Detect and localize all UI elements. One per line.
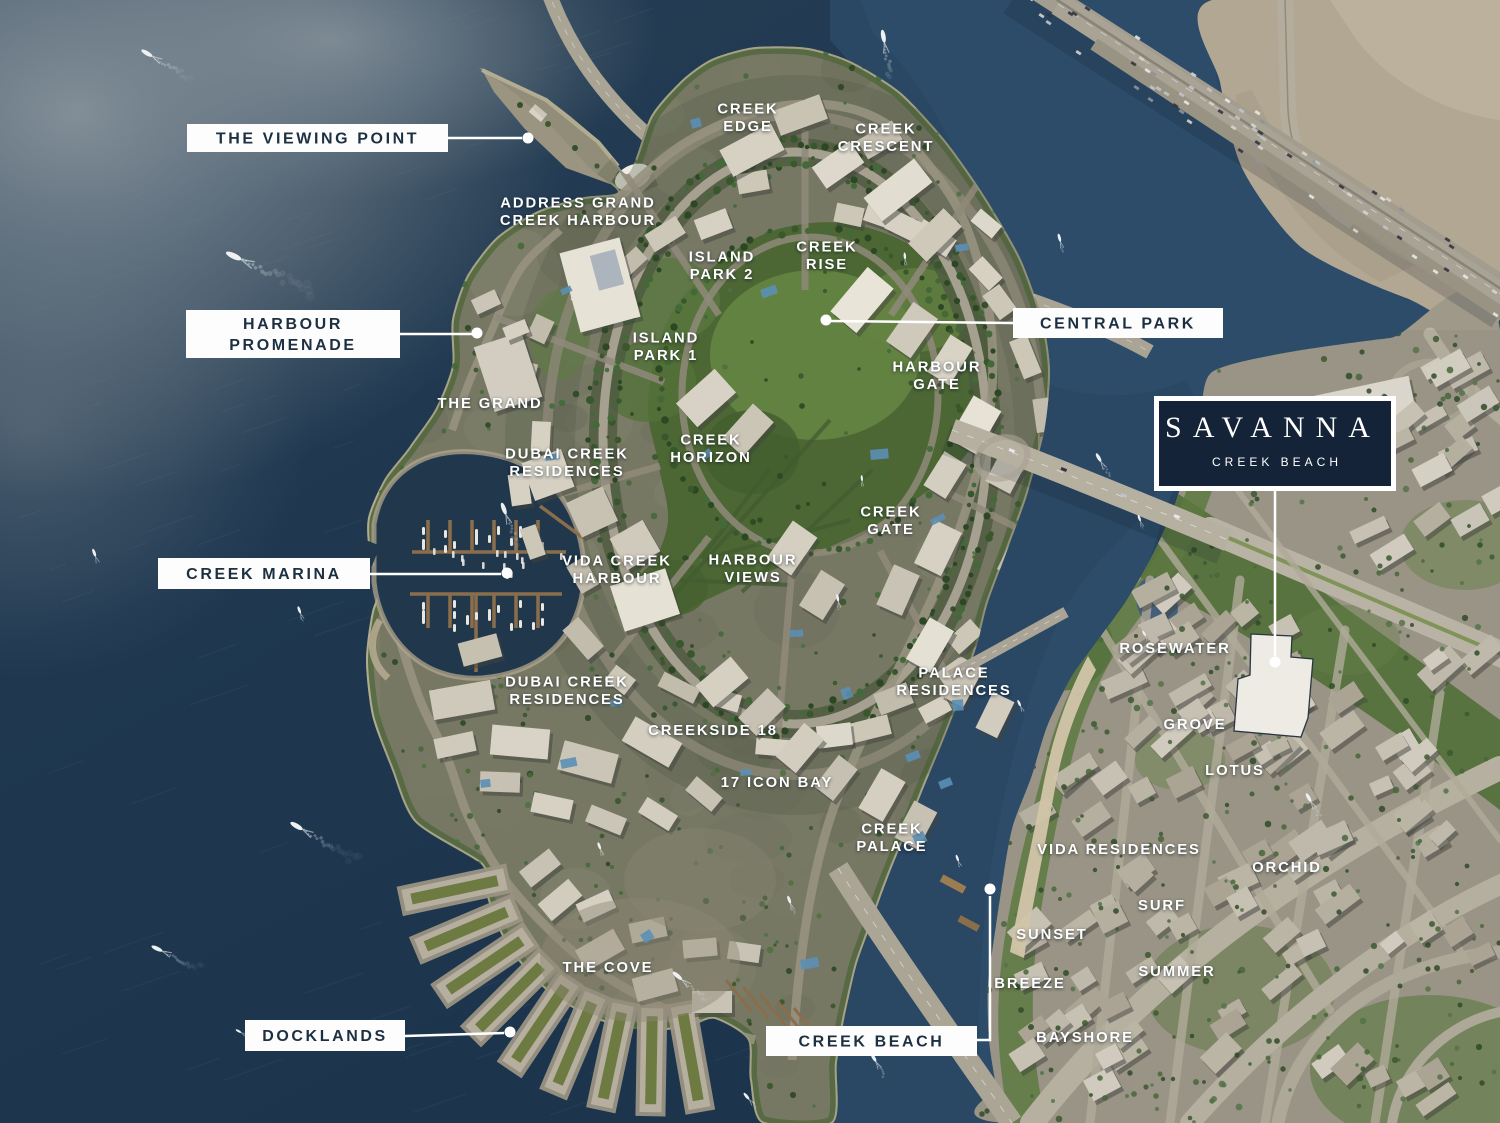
- svg-text:SUMMER: SUMMER: [1138, 964, 1215, 980]
- svg-text:CREEK BEACH: CREEK BEACH: [1212, 455, 1342, 469]
- svg-text:ROSEWATER: ROSEWATER: [1119, 641, 1230, 657]
- svg-text:DUBAI CREEKRESIDENCES: DUBAI CREEKRESIDENCES: [505, 446, 629, 480]
- svg-text:THE GRAND: THE GRAND: [437, 396, 542, 412]
- svg-text:DOCKLANDS: DOCKLANDS: [262, 1028, 388, 1045]
- svg-text:ISLANDPARK 2: ISLANDPARK 2: [689, 249, 755, 283]
- svg-text:CREEKEDGE: CREEKEDGE: [717, 101, 778, 134]
- svg-text:CREEKPALACE: CREEKPALACE: [856, 821, 927, 855]
- svg-text:ISLANDPARK 1: ISLANDPARK 1: [633, 330, 699, 364]
- svg-text:CREEK MARINA: CREEK MARINA: [186, 566, 342, 583]
- svg-text:BAYSHORE: BAYSHORE: [1036, 1030, 1134, 1046]
- svg-text:17 ICON BAY: 17 ICON BAY: [721, 775, 833, 791]
- svg-text:SURF: SURF: [1138, 898, 1186, 914]
- svg-text:LOTUS: LOTUS: [1205, 763, 1265, 779]
- svg-text:CREEK BEACH: CREEK BEACH: [799, 1034, 945, 1051]
- svg-text:SUNSET: SUNSET: [1016, 927, 1087, 943]
- svg-text:BREEZE: BREEZE: [994, 976, 1065, 992]
- svg-text:DUBAI CREEKRESIDENCES: DUBAI CREEKRESIDENCES: [505, 674, 629, 708]
- svg-text:VIDA RESIDENCES: VIDA RESIDENCES: [1037, 842, 1201, 858]
- svg-text:GROVE: GROVE: [1164, 717, 1227, 733]
- svg-text:CREEKSIDE 18: CREEKSIDE 18: [648, 723, 778, 739]
- svg-text:SAVANNA: SAVANNA: [1165, 411, 1381, 444]
- svg-text:ORCHID: ORCHID: [1252, 860, 1322, 876]
- svg-text:CREEKHORIZON: CREEKHORIZON: [670, 432, 752, 466]
- svg-text:THE VIEWING POINT: THE VIEWING POINT: [216, 131, 419, 148]
- svg-text:ADDRESS GRANDCREEK HARBOUR: ADDRESS GRANDCREEK HARBOUR: [500, 195, 656, 229]
- svg-text:CREEKGATE: CREEKGATE: [860, 504, 921, 538]
- svg-text:VIDA CREEKHARBOUR: VIDA CREEKHARBOUR: [562, 553, 672, 587]
- svg-text:CENTRAL PARK: CENTRAL PARK: [1040, 316, 1196, 333]
- svg-text:THE COVE: THE COVE: [563, 960, 654, 976]
